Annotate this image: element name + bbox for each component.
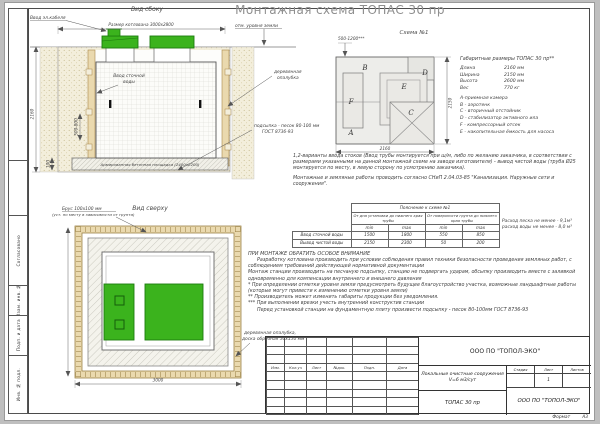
- document-title-cell: Локальные очистные сооружения V=6 м3/сут: [418, 366, 506, 391]
- revision-header-row: Изм. Кол.уч Лист №док. Подп. Дата: [267, 363, 419, 372]
- notes-block: 1,2-варианты ввода стоков (Ввод трубы мо…: [293, 154, 581, 191]
- attention-title: ПРИ МОНТАЖЕ ОБРАТИТЬ ОСОБОЕ ВНИМАНИЕ: [248, 251, 586, 257]
- scheme-top-dim: 500-1200***: [338, 36, 364, 41]
- drawing-sheet: Согласовано Взам. инв. № Подп. и дата Ин…: [0, 0, 600, 424]
- pit-size-dim: Размер котлована 3000х2800: [108, 22, 174, 27]
- attention-line: Монтаж станции производить на песчаную п…: [248, 270, 586, 282]
- chamber-a: A: [347, 129, 353, 137]
- table-row: Вывод чистой воды 2150 2300 50 200: [293, 240, 500, 248]
- side-view-drawing: Армированная бетонная площадка (2400х220…: [28, 14, 333, 204]
- chamber-d: D: [421, 69, 428, 77]
- chamber-c: C: [408, 109, 414, 117]
- company-name-top: ООО ПО "ТОПОЛ-ЭКО": [418, 337, 591, 366]
- stamp-cell-empty-2: [9, 161, 27, 216]
- vent-chimney: [108, 29, 120, 36]
- spec-row: Высота2600 мм: [460, 79, 592, 84]
- side-view-title: Вид сбоку: [97, 6, 197, 13]
- stamp-cell-inv-podl: Инв. № подл.: [9, 356, 27, 413]
- bedding-label: подсыпка - песок 80-100 мм: [254, 123, 320, 129]
- tank-lids: [102, 29, 194, 48]
- table-row: Ввод сточной воды 1500 1800 550 850: [293, 232, 500, 240]
- scheme-drawing: B D E F C A 500-1200*** 2150 2160: [325, 28, 480, 168]
- scheme-bottom-dim: 2160: [380, 146, 391, 151]
- company-name-bottom: ООО ПО "ТОПОЛ-ЭКО": [507, 388, 591, 414]
- specs-block: Габаритные размеры ТОПАС 30 пр** Длина21…: [460, 56, 592, 137]
- formwork-label: деревянная: [273, 70, 302, 75]
- explain-table: Пояснение к схеме №1 От дна установки до…: [292, 203, 500, 248]
- explain-group-1: От дна установки до нижнего края трубы: [351, 213, 425, 225]
- inlet-label: Ввод сточной: [113, 73, 145, 79]
- stamp-column: Согласовано Взам. инв. № Подп. и дата Ин…: [8, 8, 28, 414]
- attention-line: * При определении отметки уровня земли п…: [248, 283, 586, 295]
- stamp-cell-podp-data: Подп. и дата: [9, 316, 27, 356]
- chamber-e: E: [400, 83, 406, 91]
- revision-table: Изм. Кол.уч Лист №док. Подп. Дата: [266, 337, 419, 415]
- stamp-cell-soglasovano: Согласовано: [9, 216, 27, 286]
- document-name-cell: ТОПАС 30 пр: [418, 391, 506, 415]
- depth-dim: 2160: [30, 108, 35, 119]
- svg-text:воды: воды: [123, 80, 135, 85]
- spec-row: Вес770 кг: [460, 86, 592, 91]
- format-label: Формат А3: [498, 415, 588, 420]
- scheme-right-dim: 2150: [448, 97, 453, 108]
- chamber-legend: А-приемная камера В - аэротенк С - втори…: [460, 96, 592, 137]
- svg-text:ГОСТ 8736-93: ГОСТ 8736-93: [262, 129, 294, 135]
- slab-thickness-dim: 100: [46, 160, 51, 168]
- stage-grid: Стадия Лист Листов 1 ООО ПО "ТОПОЛ-ЭКО": [506, 366, 591, 415]
- legend-item: D - стабилизатор активного ила: [460, 116, 592, 123]
- width-dim: 3000: [153, 378, 164, 383]
- specs-title: Габаритные размеры ТОПАС 30 пр**: [460, 56, 592, 62]
- chamber-b: B: [361, 64, 367, 72]
- inlet-depth-dim: 500-800: [74, 118, 79, 136]
- stamp-cell-empty-1: [9, 9, 27, 161]
- sheet-number: 1: [535, 374, 563, 388]
- legend-item: F - компрессорный отсек: [460, 123, 592, 130]
- consumption-note: Расход песка не менее - 9,1м³ расход вод…: [502, 219, 594, 231]
- cable-label: Ввод эл.кабеля: [30, 15, 66, 21]
- tank-lids-plan: [104, 284, 203, 340]
- title-block: Изм. Кол.уч Лист №док. Подп. Дата ООО ПО…: [265, 336, 590, 414]
- tank-section: [96, 48, 216, 158]
- attention-block: ПРИ МОНТАЖЕ ОБРАТИТЬ ОСОБОЕ ВНИМАНИЕ Раз…: [248, 251, 586, 314]
- svg-text:(уст. по месту в зависимости о: (уст. по месту в зависимости от грунта): [52, 212, 135, 217]
- concrete-slab: Армированная бетонная площадка (2400х220…: [72, 158, 228, 170]
- attention-line: Перед установкой станции на фундаментную…: [248, 308, 586, 314]
- legend-item: А-приемная камера: [460, 96, 592, 103]
- explain-table-title: Пояснение к схеме №1: [351, 204, 499, 213]
- svg-text:опалубка: опалубка: [277, 75, 299, 81]
- spec-row: Длина2160 мм: [460, 66, 592, 71]
- ground-level-label: отм. уровня земли: [235, 24, 278, 29]
- note-snip: Монтажные и земляные работы проводить со…: [293, 176, 581, 188]
- spec-row: Ширина2150 мм: [460, 73, 592, 78]
- note-variants: 1,2-варианты ввода стоков (Ввод трубы мо…: [293, 154, 581, 173]
- legend-item: Е - накопительная ёмкость для насоса: [460, 130, 592, 137]
- attention-line: Разработку котлована производить при усл…: [248, 258, 586, 270]
- stamp-cell-vzam-inv: Взам. инв. №: [9, 286, 27, 316]
- explain-group-2: От поверхности грунта до нижнего края тр…: [425, 213, 499, 225]
